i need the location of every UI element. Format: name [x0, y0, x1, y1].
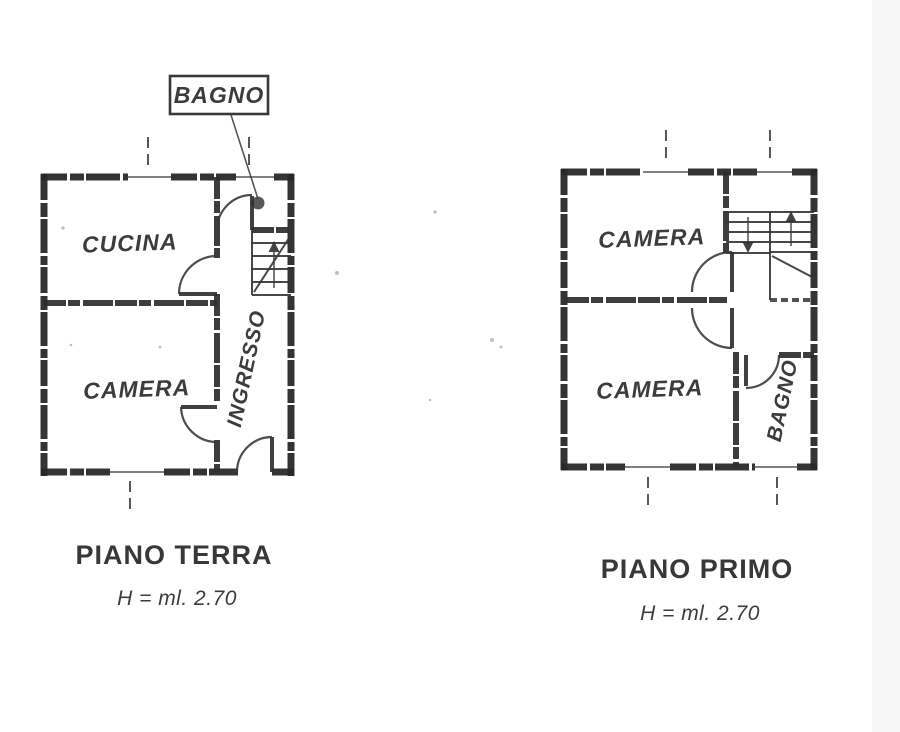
room-label-camera-lower: CAMERA: [596, 374, 704, 404]
stair-down-arrow-icon: [743, 242, 754, 253]
first-floor-plan: CAMERA CAMERA BAGNO PIANO PRIMO H = ml. …: [561, 130, 817, 625]
door-arc: [692, 252, 732, 292]
door-arc: [217, 195, 252, 230]
room-label-bagno: BAGNO: [763, 358, 803, 444]
bagno-callout-label: BAGNO: [174, 82, 265, 108]
door-arc: [181, 407, 217, 442]
room-label-cucina: CUCINA: [82, 228, 178, 257]
plan-title-first: PIANO PRIMO: [601, 554, 794, 584]
stair-break-line: [772, 256, 814, 278]
room-label-camera-upper: CAMERA: [598, 223, 706, 253]
staircase-up-down: [726, 211, 814, 300]
door-arc: [692, 308, 732, 348]
door-arc: [179, 256, 217, 294]
staircase-up: [252, 230, 291, 295]
room-label-ingresso: INGRESSO: [223, 308, 270, 429]
ground-floor-plan: BAGNO: [41, 76, 294, 610]
floor-plan-sheet: BAGNO: [0, 0, 900, 732]
entry-door-arc: [237, 437, 272, 472]
scan-edge-shade: [872, 0, 900, 732]
floor-plan-drawing: BAGNO: [0, 0, 900, 732]
plan-height-note-ground: H = ml. 2.70: [117, 587, 237, 610]
plan-height-note-first: H = ml. 2.70: [640, 602, 760, 625]
room-label-camera: CAMERA: [83, 374, 191, 404]
plan-title-ground: PIANO TERRA: [75, 540, 272, 570]
bagno-leader-line: [231, 115, 258, 199]
